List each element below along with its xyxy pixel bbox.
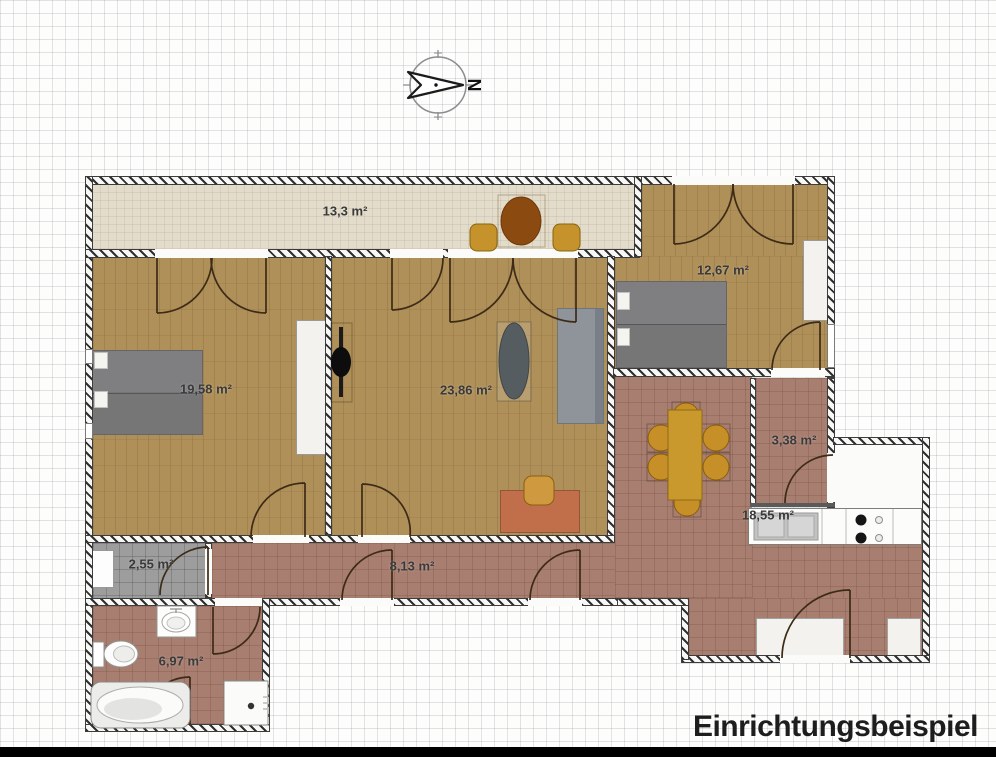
room-label-bedroom-left: 19,58 m² xyxy=(180,382,232,397)
window xyxy=(85,423,93,439)
door-opening xyxy=(253,535,309,543)
sofa-backrest xyxy=(595,309,603,423)
wall xyxy=(922,437,930,662)
room-label-bedroom-right: 12,67 m² xyxy=(697,263,749,278)
entry-cabinet xyxy=(756,618,844,656)
door-opening xyxy=(358,535,410,543)
door-opening xyxy=(205,549,212,594)
sofa xyxy=(557,308,604,424)
door-opening xyxy=(780,655,850,663)
floor-dining xyxy=(615,376,752,600)
door-opening xyxy=(528,598,582,606)
compass-ticks xyxy=(403,50,473,120)
bed-lower-mattress xyxy=(617,324,726,367)
room-label-balcony: 13,3 m² xyxy=(323,204,368,219)
pillow xyxy=(617,292,630,310)
room-label-hallway: 8,13 m² xyxy=(390,559,435,574)
wall xyxy=(607,256,615,543)
door-opening xyxy=(672,176,795,185)
room-label-small-room: 3,38 m² xyxy=(772,433,817,448)
entry-cabinet-small xyxy=(887,618,921,656)
north-arrow-icon xyxy=(408,72,463,98)
wall xyxy=(85,535,615,543)
compass-north-letter: N xyxy=(464,79,484,92)
room-label-living: 23,86 m² xyxy=(440,383,492,398)
wall xyxy=(681,598,689,660)
pillow xyxy=(94,391,108,408)
washing-machine xyxy=(92,550,114,588)
bottom-bar xyxy=(0,747,996,757)
wardrobe-bedroom-left xyxy=(296,320,327,455)
plan-caption: Einrichtungsbeispiel xyxy=(693,710,978,744)
door-opening xyxy=(771,368,825,377)
wall-thin xyxy=(750,503,835,507)
desk xyxy=(500,490,580,533)
compass-circle xyxy=(410,57,466,113)
pillow xyxy=(94,352,108,369)
floor-plan-page: { "caption": "Einrichtungsbeispiel", "co… xyxy=(0,0,996,757)
wall xyxy=(85,176,93,732)
door-opening xyxy=(448,249,578,258)
compass-tick-caps xyxy=(434,53,442,117)
door-opening xyxy=(827,453,835,502)
window xyxy=(85,349,93,364)
floor-kitchen-white xyxy=(835,445,922,508)
wall xyxy=(85,724,270,732)
door-opening xyxy=(155,249,268,258)
wall xyxy=(833,437,930,445)
pillow xyxy=(617,328,630,346)
door-opening xyxy=(215,598,262,606)
door-opening xyxy=(340,598,394,606)
wall xyxy=(613,598,689,606)
wall xyxy=(325,256,332,535)
compass: N xyxy=(403,50,484,120)
room-label-dining: 18,55 m² xyxy=(742,508,794,523)
wall xyxy=(634,176,642,257)
bed-lower-mattress xyxy=(93,392,202,434)
double-bed-right xyxy=(616,281,727,368)
door-opening xyxy=(390,249,443,258)
room-label-bathroom: 6,97 m² xyxy=(159,654,204,669)
compass-center-dot xyxy=(434,83,437,86)
room-label-utility: 2,55 m² xyxy=(129,557,174,572)
wall xyxy=(750,378,756,506)
window xyxy=(827,324,835,368)
floor-bedroom-right-upper xyxy=(642,184,827,256)
wall xyxy=(262,598,270,732)
